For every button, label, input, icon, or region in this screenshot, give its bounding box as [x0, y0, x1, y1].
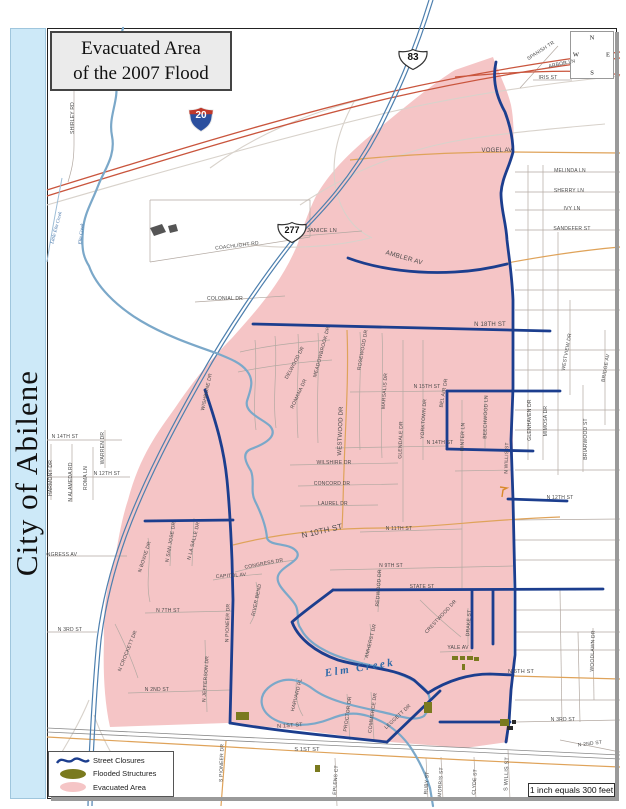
compass-e: E — [606, 52, 610, 59]
legend-label: Flooded Structures — [93, 769, 156, 778]
legend-label: Evacuated Area — [93, 783, 146, 792]
us-277-shield-number: 277 — [277, 225, 307, 235]
map-title-line-2: of the 2007 Flood — [73, 61, 209, 86]
compass-w: W — [573, 52, 579, 59]
us-83-shield-number: 83 — [398, 52, 428, 63]
compass-s: S — [590, 70, 594, 77]
map-overlay — [0, 0, 626, 809]
legend-item-street-closures: Street Closures — [53, 754, 169, 767]
flood-map-page: N E S W 20 83 277 SHIRLEY RDSPANISH TRAR… — [0, 0, 626, 809]
interstate-20-shield-number: 20 — [188, 110, 214, 121]
legend-item-evacuated-area: Evacuated Area — [53, 781, 169, 794]
city-title: City of Abilene — [9, 298, 45, 648]
map-title-box: Evacuated Area of the 2007 Flood — [50, 31, 232, 91]
evacuated-area-swatch-icon — [53, 782, 93, 792]
scale-box: 1 inch equals 300 feet — [528, 783, 615, 797]
scale-text: 1 inch equals 300 feet — [530, 785, 613, 795]
legend-box: Street Closures Flooded Structures Evacu… — [48, 751, 174, 797]
compass-box: N E S W — [570, 31, 614, 79]
map-shadow-bottom — [51, 797, 619, 801]
legend-item-flooded-structures: Flooded Structures — [53, 767, 169, 780]
street-closures-line-icon — [53, 755, 93, 766]
legend-label: Street Closures — [93, 756, 145, 765]
flooded-structures-swatch-icon — [53, 769, 93, 779]
map-title-line-1: Evacuated Area — [81, 36, 201, 61]
compass-n: N — [590, 35, 595, 42]
map-shadow-right — [615, 32, 619, 801]
